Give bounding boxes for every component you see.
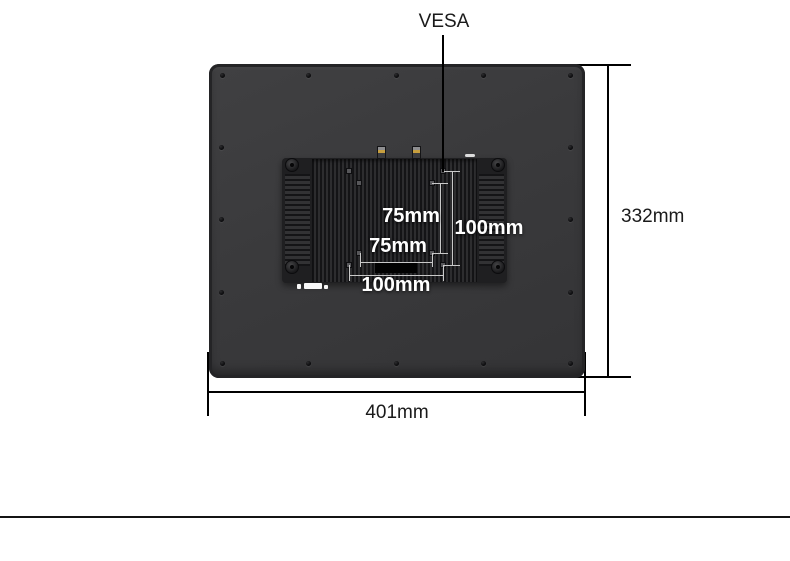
- panel-screw: [306, 73, 311, 78]
- bottom-port-mark: [304, 283, 322, 289]
- panel-screw: [568, 290, 573, 295]
- dim-tick: [432, 183, 448, 184]
- panel-screw: [394, 361, 399, 366]
- panel-screw: [220, 73, 225, 78]
- height-dimension-label: 332mm: [621, 206, 684, 228]
- panel-screw: [220, 361, 225, 366]
- vesa-dimension-diagram: VESA 332mm 401mm: [0, 0, 790, 561]
- dim-tick: [349, 265, 350, 281]
- heatsink-screw: [285, 158, 299, 172]
- monitor-back-panel: 75mm 100mm 75mm 100mm: [209, 64, 585, 378]
- heatsink: 75mm 100mm 75mm 100mm: [282, 158, 507, 283]
- panel-screw: [219, 145, 224, 150]
- panel-screw: [481, 361, 486, 366]
- panel-screw: [219, 217, 224, 222]
- connector-slot: [375, 263, 417, 273]
- panel-screw: [568, 145, 573, 150]
- heatsink-screw: [285, 260, 299, 274]
- dim-tick: [432, 253, 433, 267]
- label-75mm-vertical: 75mm: [382, 205, 440, 228]
- label-100mm-horizontal: 100mm: [362, 274, 431, 297]
- vesa-title: VESA: [419, 11, 470, 33]
- label-100mm-vertical: 100mm: [455, 217, 524, 240]
- width-dimension-line: [209, 391, 586, 393]
- panel-screw: [568, 217, 573, 222]
- dim-tick: [443, 265, 444, 281]
- dim-tick: [443, 265, 460, 266]
- panel-screw: [568, 73, 573, 78]
- vesa-hole-75: [356, 250, 362, 256]
- dim-tick: [360, 253, 361, 267]
- dim-line-75-horizontal: [360, 262, 432, 263]
- panel-screw: [219, 290, 224, 295]
- vesa-hole-75: [356, 180, 362, 186]
- label-75mm-horizontal: 75mm: [369, 235, 427, 258]
- dim-line-75-vertical: [440, 183, 441, 253]
- panel-screw: [306, 361, 311, 366]
- panel-screw: [394, 73, 399, 78]
- dim-tick: [432, 253, 448, 254]
- width-dimension-label: 401mm: [365, 402, 428, 424]
- dim-tick: [443, 171, 460, 172]
- dim-line-100-vertical: [452, 171, 453, 265]
- vesa-hole-100: [346, 168, 352, 174]
- section-divider: [0, 516, 790, 518]
- height-dimension-line: [607, 64, 609, 378]
- heatsink-screw: [491, 260, 505, 274]
- bottom-port-mark: [324, 285, 328, 289]
- panel-screw: [481, 73, 486, 78]
- vesa-pointer-line: [442, 35, 444, 172]
- panel-screw: [568, 361, 573, 366]
- bottom-port-mark: [297, 284, 301, 289]
- antenna-connector: [412, 146, 421, 159]
- heatsink-side-fins-left: [285, 174, 310, 266]
- antenna-connector: [377, 146, 386, 159]
- top-port-mark: [465, 154, 475, 157]
- heatsink-screw: [491, 158, 505, 172]
